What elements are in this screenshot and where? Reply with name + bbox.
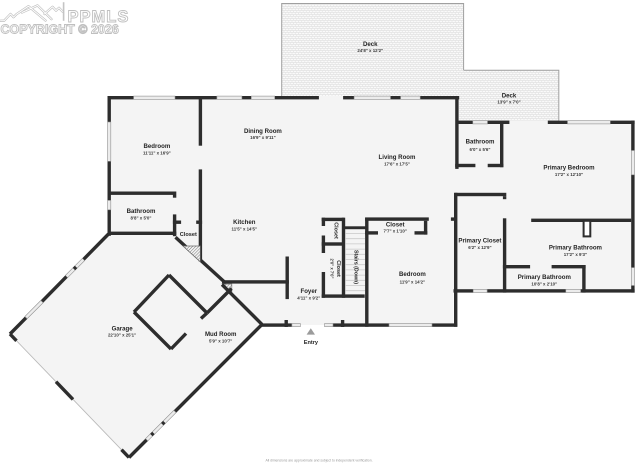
svg-text:24'8" x 12'2": 24'8" x 12'2" bbox=[357, 48, 383, 53]
svg-text:Closet: Closet bbox=[386, 222, 405, 229]
svg-text:Primary Bedroom: Primary Bedroom bbox=[543, 165, 595, 172]
svg-text:Deck: Deck bbox=[502, 93, 517, 100]
svg-text:13'9" x 7'0": 13'9" x 7'0" bbox=[497, 100, 520, 105]
svg-text:All dimensions are approximate: All dimensions are approximate and subje… bbox=[265, 459, 372, 463]
svg-text:Dining Room: Dining Room bbox=[244, 128, 282, 135]
svg-text:10'8" x 2'10": 10'8" x 2'10" bbox=[531, 282, 557, 287]
svg-text:Foyer: Foyer bbox=[300, 288, 317, 295]
svg-text:17'2" x 12'10": 17'2" x 12'10" bbox=[555, 172, 583, 177]
svg-text:Kitchen: Kitchen bbox=[233, 219, 256, 226]
svg-text:COPYRIGHT © 2026: COPYRIGHT © 2026 bbox=[1, 23, 119, 37]
svg-text:Stairs (Down): Stairs (Down) bbox=[352, 250, 358, 284]
svg-text:Closet: Closet bbox=[180, 232, 197, 238]
svg-text:5'9" x 10'7": 5'9" x 10'7" bbox=[209, 338, 232, 343]
svg-text:6'2" x 12'9": 6'2" x 12'9" bbox=[468, 245, 491, 250]
svg-text:Garage: Garage bbox=[112, 325, 134, 332]
svg-text:Primary Bathroom: Primary Bathroom bbox=[549, 245, 603, 252]
svg-text:16'9" x 9'11": 16'9" x 9'11" bbox=[250, 135, 276, 140]
svg-text:2'0" x 7'0": 2'0" x 7'0" bbox=[330, 259, 335, 279]
svg-text:17'6" x 17'5": 17'6" x 17'5" bbox=[384, 162, 410, 167]
svg-text:Bedroom: Bedroom bbox=[144, 143, 171, 150]
svg-text:6'0" x 5'6": 6'0" x 5'6" bbox=[470, 147, 491, 152]
svg-text:Living Room: Living Room bbox=[379, 154, 416, 161]
svg-text:Entry: Entry bbox=[304, 340, 319, 346]
svg-text:Bedroom: Bedroom bbox=[399, 271, 426, 278]
svg-text:22'10" x 25'1": 22'10" x 25'1" bbox=[108, 333, 136, 338]
svg-text:Bathroom: Bathroom bbox=[466, 139, 495, 146]
svg-text:8'8" x 5'0": 8'8" x 5'0" bbox=[131, 215, 152, 220]
svg-text:17'2" x 9'3": 17'2" x 9'3" bbox=[564, 252, 587, 257]
svg-text:Primary Closet: Primary Closet bbox=[458, 238, 501, 245]
svg-text:Closet: Closet bbox=[333, 222, 339, 239]
svg-text:Primary Bathroom: Primary Bathroom bbox=[518, 274, 572, 281]
svg-text:Bathroom: Bathroom bbox=[127, 208, 156, 215]
svg-text:Deck: Deck bbox=[363, 41, 378, 48]
svg-text:7'7" x 1'10": 7'7" x 1'10" bbox=[384, 229, 407, 234]
svg-text:11'9" x 14'2": 11'9" x 14'2" bbox=[400, 280, 426, 285]
svg-text:Closet: Closet bbox=[335, 260, 341, 277]
svg-text:11'11" x 16'9": 11'11" x 16'9" bbox=[143, 150, 171, 155]
svg-text:11'5" x 14'5": 11'5" x 14'5" bbox=[232, 227, 258, 232]
svg-text:4'11" x 9'2": 4'11" x 9'2" bbox=[297, 295, 320, 300]
svg-text:Mud Room: Mud Room bbox=[205, 331, 237, 338]
